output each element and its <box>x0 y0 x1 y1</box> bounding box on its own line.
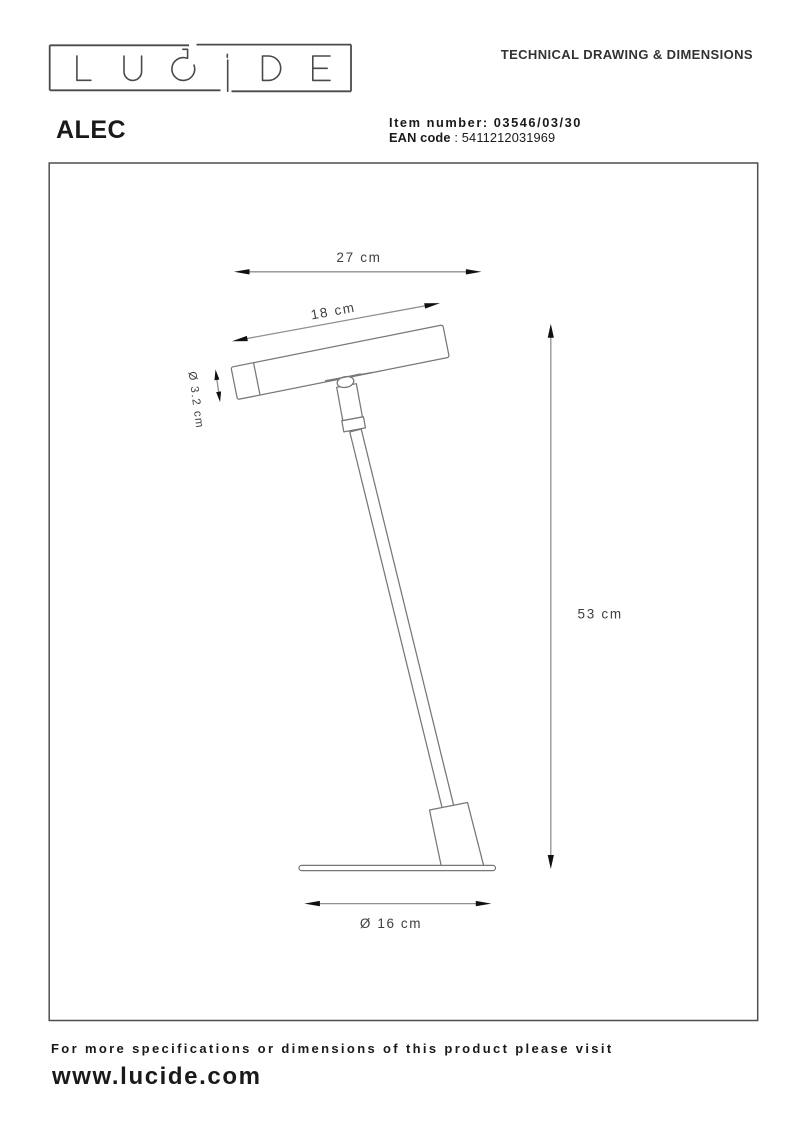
svg-text:27 cm: 27 cm <box>336 250 381 265</box>
svg-text:53 cm: 53 cm <box>578 607 623 622</box>
svg-text:Ø 16 cm: Ø 16 cm <box>360 916 422 931</box>
svg-text:Ø 3.2 cm: Ø 3.2 cm <box>186 371 206 430</box>
